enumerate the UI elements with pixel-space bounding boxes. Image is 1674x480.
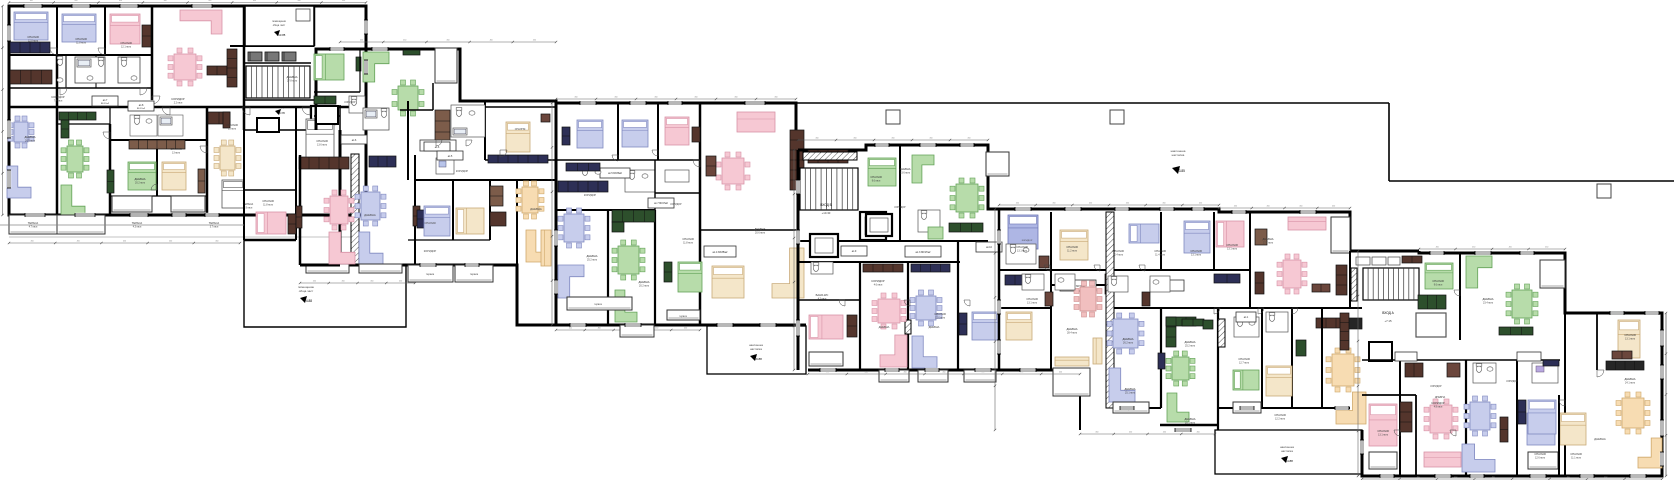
svg-text:СПАЛНЯ: СПАЛНЯ	[120, 41, 131, 45]
svg-text:ДНЕВНА: ДНЕВНА	[24, 135, 35, 139]
svg-text:12.7 кв.м: 12.7 кв.м	[1239, 361, 1249, 364]
svg-text:настилка: настилка	[1172, 153, 1185, 157]
svg-text:ДНЕВНА: ДНЕВНА	[1184, 340, 1195, 344]
svg-text:450: 450	[342, 281, 345, 283]
svg-text:ДНЕВНА: ДНЕВНА	[1262, 237, 1273, 241]
svg-text:450: 450	[775, 97, 778, 99]
svg-text:СПАЛНЯ: СПАЛНЯ	[262, 199, 273, 203]
svg-text:11.8 кв.м: 11.8 кв.м	[263, 203, 273, 206]
svg-text:ДНЕВНА: ДНЕВНА	[1066, 327, 1077, 331]
svg-text:450: 450	[1059, 372, 1062, 374]
svg-text:ДНЕВНА: ДНЕВНА	[879, 325, 890, 329]
svg-text:450: 450	[1126, 203, 1129, 205]
svg-text:КОРИДОР: КОРИДОР	[344, 102, 356, 104]
svg-text:ВХОД В: ВХОД В	[276, 105, 287, 109]
svg-text:+7.15: +7.15	[1384, 319, 1392, 323]
svg-text:450: 450	[447, 40, 450, 42]
svg-text:12.2 кв.м: 12.2 кв.м	[1275, 417, 1285, 420]
svg-text:450: 450	[598, 328, 601, 330]
svg-text:450: 450	[854, 138, 857, 140]
svg-text:СПАЛНЯ: СПАЛНЯ	[1226, 243, 1237, 247]
svg-text:20.6 кв.м: 20.6 кв.м	[755, 231, 765, 234]
svg-text:КОРИДОР: КОРИДОР	[584, 194, 596, 197]
svg-text:КОРИДОР: КОРИДОР	[51, 95, 64, 99]
svg-text:450: 450	[1492, 477, 1495, 479]
svg-text:ап.7: ап.7	[103, 99, 108, 102]
svg-text:450: 450	[298, 0, 301, 2]
svg-text:КОРИДОР: КОРИДОР	[894, 207, 906, 209]
svg-text:ДНЕВНА: ДНЕВНА	[586, 254, 597, 258]
svg-text:КОРИДОР: КОРИДОР	[1430, 386, 1442, 388]
svg-text:КОРИДОР: КОРИДОР	[1506, 381, 1518, 383]
svg-text:450: 450	[31, 241, 34, 243]
svg-text:450: 450	[1129, 432, 1132, 434]
svg-text:СПАЛНЯ: СПАЛНЯ	[515, 128, 526, 131]
svg-text:450: 450	[655, 97, 658, 99]
svg-text:СПАЛНЯ: СПАЛНЯ	[170, 147, 181, 151]
svg-text:450: 450	[1267, 206, 1270, 208]
svg-text:КОРИДОР: КОРИДОР	[456, 170, 468, 173]
svg-text:СПАЛНЯ: СПАЛНЯ	[1570, 452, 1581, 456]
svg-text:ап.1: ап.1	[1244, 317, 1249, 319]
svg-text:450: 450	[1299, 206, 1302, 208]
svg-text:450: 450	[1604, 477, 1607, 479]
svg-text:СПАЛНЯ: СПАЛНЯ	[75, 37, 86, 41]
svg-text:4.3 кв.м: 4.3 кв.м	[133, 225, 142, 228]
svg-text:24.1 кв.м: 24.1 кв.м	[1625, 381, 1635, 384]
svg-text:СПАЛНЯ: СПАЛНЯ	[1432, 279, 1443, 283]
svg-text:СПАЛНЯ: СПАЛНЯ	[1274, 413, 1285, 417]
svg-text:3.7 кв.м: 3.7 кв.м	[210, 225, 219, 228]
svg-text:СПАЛНЯ: СПАЛНЯ	[1377, 429, 1388, 433]
svg-text:450: 450	[892, 138, 895, 140]
svg-text:тераса: тераса	[470, 273, 479, 276]
svg-text:4.8 кв.м: 4.8 кв.м	[1434, 405, 1443, 408]
svg-text:450: 450	[123, 241, 126, 243]
svg-text:450: 450	[1199, 203, 1202, 205]
svg-text:11.4 кв.м: 11.4 кв.м	[1155, 253, 1165, 256]
svg-text:ДНЕВНА: ДНЕВНА	[1124, 387, 1135, 391]
svg-text:ДНЕВНА: ДНЕВНА	[929, 325, 940, 329]
svg-text:КОРИДОР: КОРИДОР	[171, 97, 184, 101]
svg-text:450: 450	[1436, 247, 1439, 249]
svg-text:20.1 кв.м: 20.1 кв.м	[1185, 421, 1195, 424]
svg-text:ДНЕВНА: ДНЕВНА	[286, 75, 297, 79]
svg-text:13.1 кв.м: 13.1 кв.м	[1378, 433, 1388, 436]
svg-text:26.2 кв.м: 26.2 кв.м	[1123, 341, 1133, 344]
svg-text:КОРИДОР: КОРИДОР	[1022, 240, 1033, 242]
svg-text:тераса: тераса	[426, 273, 435, 276]
svg-text:13 кв.м: 13 кв.м	[228, 127, 236, 130]
svg-text:СПАЛНЯ: СПАЛНЯ	[1112, 249, 1123, 253]
svg-text:450: 450	[655, 328, 658, 330]
svg-text:98.17м2: 98.17м2	[101, 103, 110, 105]
svg-text:450: 450	[1332, 206, 1335, 208]
svg-text:12.8 кв.м: 12.8 кв.м	[28, 39, 38, 42]
svg-text:450: 450	[735, 97, 738, 99]
svg-text:11.2 кв.м: 11.2 кв.м	[1067, 249, 1077, 252]
svg-text:450: 450	[169, 241, 172, 243]
svg-text:450: 450	[360, 40, 363, 42]
svg-text:13.1 кв.м: 13.1 кв.м	[1227, 247, 1237, 250]
svg-text:ДНЕВНА: ДНЕВНА	[1122, 337, 1133, 341]
svg-text:помещение: помещение	[272, 20, 287, 23]
svg-text:23.6 кв.м: 23.6 кв.м	[900, 171, 910, 174]
svg-text:ап.4 83.85м2: ап.4 83.85м2	[713, 251, 728, 254]
svg-text:11.8 кв.м: 11.8 кв.м	[76, 41, 86, 44]
svg-text:КОРИДОР: КОРИДОР	[1431, 401, 1444, 405]
svg-text:450: 450	[816, 138, 819, 140]
svg-text:ДНЕВНА: ДНЕВНА	[1624, 377, 1635, 381]
svg-text:12.6 кв.м: 12.6 кв.м	[1535, 456, 1545, 459]
svg-text:450: 450	[865, 372, 868, 374]
svg-text:ап.10: ап.10	[986, 247, 992, 249]
svg-text:обща част: обща част	[299, 289, 314, 293]
svg-text:тераса: тераса	[594, 303, 602, 306]
svg-text:ДНЕВНА: ДНЕВНА	[134, 177, 145, 181]
svg-text:ап.5: ап.5	[448, 156, 453, 158]
svg-text:БАНЯ-WC: БАНЯ-WC	[816, 293, 829, 297]
svg-text:20.2 кв.м: 20.2 кв.м	[135, 181, 145, 184]
svg-text:450: 450	[342, 0, 345, 2]
svg-text:ап.6: ап.6	[435, 147, 440, 149]
svg-text:4.2 кв.м: 4.2 кв.м	[818, 297, 827, 300]
svg-text:КОРИДОР: КОРИДОР	[871, 279, 884, 283]
svg-text:13.1 кв.м: 13.1 кв.м	[1027, 301, 1037, 304]
svg-text:+10.30: +10.30	[822, 211, 831, 215]
svg-text:450: 450	[403, 40, 406, 42]
svg-text:450: 450	[1454, 477, 1457, 479]
svg-text:тераса: тераса	[679, 315, 687, 318]
svg-text:СПАЛНЯ: СПАЛНЯ	[1190, 249, 1201, 253]
svg-text:ВХОД Б: ВХОД Б	[820, 203, 832, 207]
svg-text:ап.7 80.97м2: ап.7 80.97м2	[654, 203, 668, 205]
svg-text:25.2 кв.м: 25.2 кв.м	[1185, 344, 1195, 347]
svg-text:7.4 кв.м: 7.4 кв.м	[54, 99, 63, 102]
svg-text:450: 450	[1163, 203, 1166, 205]
svg-text:СПАЛНЯ: СПАЛНЯ	[1624, 333, 1635, 337]
svg-text:ДНЕВНА: ДНЕВНА	[1435, 396, 1446, 399]
svg-text:4.6 кв.м: 4.6 кв.м	[874, 283, 883, 286]
svg-text:28.4 кв.м: 28.4 кв.м	[1067, 331, 1077, 334]
svg-text:450: 450	[30, 0, 33, 2]
svg-text:450: 450	[904, 372, 907, 374]
svg-text:26.5 кв.м: 26.5 кв.м	[25, 139, 35, 142]
svg-text:98.17м2: 98.17м2	[137, 108, 146, 110]
svg-text:450: 450	[968, 138, 971, 140]
svg-text:450: 450	[1234, 206, 1237, 208]
svg-text:450: 450	[1197, 432, 1200, 434]
svg-text:450: 450	[399, 281, 402, 283]
svg-text:настилка: настилка	[750, 347, 762, 351]
svg-text:ТЕРАСА: ТЕРАСА	[28, 221, 39, 225]
svg-text:450: 450	[1163, 432, 1166, 434]
svg-text:11.1 кв.м: 11.1 кв.м	[1571, 456, 1581, 459]
svg-text:ДНЕВНА: ДНЕВНА	[1482, 297, 1493, 301]
svg-text:4.7 кв.м: 4.7 кв.м	[29, 225, 38, 228]
svg-text:450: 450	[208, 0, 211, 2]
svg-text:27.8 кв.м: 27.8 кв.м	[287, 79, 297, 82]
svg-text:450: 450	[1472, 247, 1475, 249]
svg-text:450: 450	[74, 0, 77, 2]
svg-text:450: 450	[313, 281, 316, 283]
svg-text:ДНЕВНА: ДНЕВНА	[530, 207, 542, 211]
svg-text:450: 450	[695, 97, 698, 99]
svg-text:ДНЕВНА: ДНЕВНА	[899, 167, 910, 171]
svg-text:ДНЕВНА: ДНЕВНА	[754, 227, 765, 231]
svg-text:настилка: настилка	[1281, 449, 1293, 453]
svg-text:ап.3 80.97м2: ап.3 80.97м2	[916, 251, 931, 254]
svg-text:ДНЕВНА: ДНЕВНА	[364, 213, 376, 217]
svg-text:27.7 кв.м: 27.7 кв.м	[1263, 241, 1273, 244]
svg-text:13.1 кв.м: 13.1 кв.м	[1191, 253, 1201, 256]
svg-text:3.9 кв.м: 3.9 кв.м	[244, 206, 253, 209]
svg-text:450: 450	[164, 0, 167, 2]
svg-text:СПАЛНЯ: СПАЛНЯ	[934, 312, 945, 316]
svg-text:СПАЛНЯ: СПАЛНЯ	[27, 35, 38, 39]
svg-text:9.6 кв.м: 9.6 кв.м	[872, 179, 881, 182]
svg-text:450: 450	[1095, 432, 1098, 434]
svg-text:12.4 кв.м: 12.4 кв.м	[1113, 253, 1123, 256]
svg-text:ТЕРАСА: ТЕРАСА	[132, 221, 143, 225]
svg-text:450: 450	[119, 0, 122, 2]
svg-text:23.4 кв.м: 23.4 кв.м	[1483, 301, 1493, 304]
svg-text:2.2 кв.м: 2.2 кв.м	[174, 101, 183, 104]
svg-text:ап.8: ап.8	[139, 104, 144, 107]
svg-text:450: 450	[1417, 477, 1420, 479]
svg-text:450: 450	[1053, 203, 1056, 205]
svg-text:КОРИДОР: КОРИДОР	[670, 204, 682, 206]
svg-text:450: 450	[1509, 247, 1512, 249]
svg-text:ап.9: ап.9	[852, 251, 857, 253]
svg-text:450: 450	[1545, 247, 1548, 249]
svg-text:13.6 кв.м: 13.6 кв.м	[317, 143, 327, 146]
svg-text:25.1 кв.м: 25.1 кв.м	[1125, 391, 1135, 394]
svg-text:450: 450	[533, 40, 536, 42]
svg-text:СПАЛНЯ: СПАЛНЯ	[1066, 245, 1077, 249]
svg-text:ВХОД А: ВХОД А	[1382, 311, 1394, 315]
svg-text:450: 450	[615, 97, 618, 99]
svg-text:13.1 кв.м: 13.1 кв.м	[1017, 249, 1027, 252]
svg-text:СПАЛНЯ: СПАЛНЯ	[1238, 357, 1249, 361]
svg-text:450: 450	[1567, 477, 1570, 479]
svg-text:9.6 кв.м: 9.6 кв.м	[1434, 283, 1443, 286]
svg-text:СПАЛНЯ: СПАЛНЯ	[316, 139, 327, 143]
svg-text:ДНЕВНА: ДНЕВНА	[638, 280, 649, 284]
svg-text:450: 450	[490, 40, 493, 42]
svg-text:ап.6: ап.6	[352, 140, 357, 142]
svg-text:450: 450	[1089, 203, 1092, 205]
svg-text:450: 450	[1016, 203, 1019, 205]
svg-text:СПАЛНЯ: СПАЛНЯ	[682, 237, 693, 241]
svg-text:12.6 кв.м: 12.6 кв.м	[935, 316, 945, 319]
svg-text:СПАЛНЯ: СПАЛНЯ	[425, 221, 436, 225]
svg-text:450: 450	[930, 138, 933, 140]
svg-text:13.1 кв.м: 13.1 кв.м	[1625, 337, 1635, 340]
svg-text:450: 450	[569, 328, 572, 330]
svg-text:450: 450	[215, 241, 218, 243]
svg-text:13 кв.м: 13 кв.м	[172, 151, 180, 154]
svg-text:СПАЛНЯ: СПАЛНЯ	[1026, 297, 1037, 301]
svg-text:450: 450	[684, 328, 687, 330]
svg-text:12.1 кв.м: 12.1 кв.м	[121, 45, 131, 48]
svg-text:450: 450	[575, 97, 578, 99]
svg-text:ДНЕВНА: ДНЕВНА	[1184, 417, 1195, 421]
svg-text:СПАЛНЯ: СПАЛНЯ	[1154, 249, 1165, 253]
svg-text:СПАЛНЯ: СПАЛНЯ	[1016, 245, 1027, 249]
svg-text:450: 450	[943, 372, 946, 374]
svg-text:КОРИДОР: КОРИДОР	[424, 249, 437, 253]
svg-text:ТЕРАСА: ТЕРАСА	[209, 221, 220, 225]
svg-text:ап.5 83.85м2: ап.5 83.85м2	[608, 173, 622, 175]
svg-text:450: 450	[77, 241, 80, 243]
svg-text:450: 450	[253, 0, 256, 2]
svg-text:25.2 кв.м: 25.2 кв.м	[587, 258, 597, 261]
svg-text:обща част: обща част	[273, 23, 286, 27]
svg-text:СПАЛНЯ: СПАЛНЯ	[226, 123, 237, 127]
svg-text:450: 450	[370, 281, 373, 283]
svg-text:СПАЛНЯ: СПАЛНЯ	[870, 175, 881, 179]
svg-text:СПАЛНЯ: СПАЛНЯ	[1534, 452, 1545, 456]
svg-text:20.2 кв.м: 20.2 кв.м	[639, 284, 649, 287]
svg-text:ДНЕВНА: ДНЕВНА	[1594, 437, 1606, 441]
svg-text:11.8 кв.м: 11.8 кв.м	[683, 241, 693, 244]
